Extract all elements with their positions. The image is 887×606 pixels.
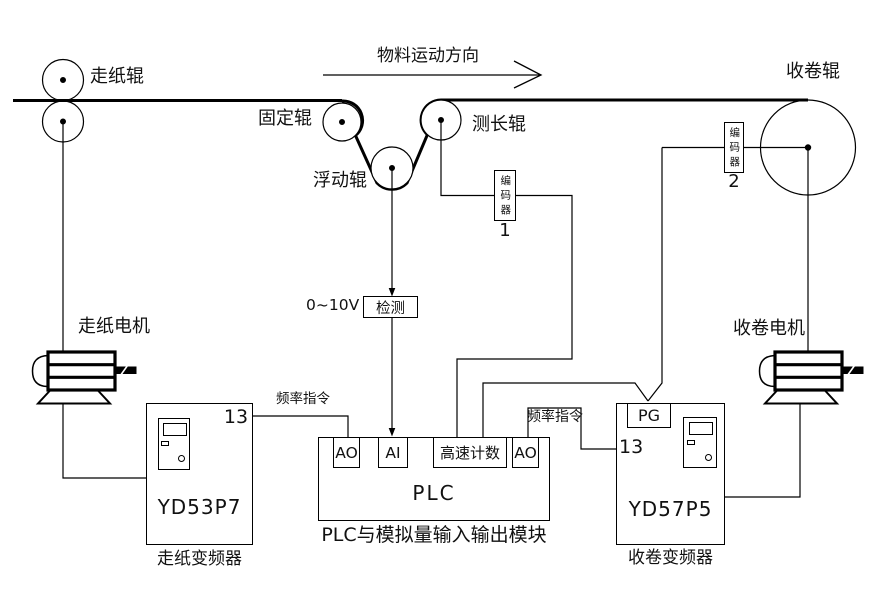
detection-box: 检测 [363,296,418,318]
feed-inverter-caption: 走纸变频器 [146,550,253,570]
encoder1-box: 编码器 [494,170,516,221]
feed-roller-label: 走纸辊 [90,67,144,88]
plc-module-ao-1: AO [333,437,360,468]
winding-inverter-keypad [683,417,717,468]
winding-motor-symbol [760,352,864,404]
fixed-roller-symbol [323,103,361,141]
measuring-to-encoder1-line [441,120,572,437]
pg-box: PG [627,403,671,428]
plc-module-ao-2: AO [512,437,539,468]
encoder2-box: 编码器 [724,122,744,173]
keypad-display [163,423,187,436]
encoder1-number: 1 [494,221,516,242]
keypad-knob [705,454,712,461]
diagram-stage: 走纸辊 固定辊 浮动辊 测长辊 收卷辊 物料运动方向 编码器 1 编码器 2 0… [0,0,887,606]
winding-roller-label: 收卷辊 [786,62,840,83]
keypad-key [687,440,695,445]
freq-command-right-label: 频率指令 [527,409,583,425]
winding-inverter-caption: 收卷变频器 [616,549,725,569]
freq-command-left-label: 频率指令 [276,392,330,408]
voltage-range-label: 0~10V [306,297,359,315]
measuring-roller-label: 测长辊 [472,115,526,136]
plc-name-label: PLC [318,482,550,505]
feed-inverter-keypad [158,418,190,470]
winding-inverter-terminal: 13 [619,437,643,459]
winding-motor-to-inverter-line [725,404,800,497]
floating-roller-label: 浮动辊 [313,171,367,192]
plc-module-ai: AI [378,437,408,468]
plc-module-hsc: 高速计数 [433,437,507,468]
ai-arrowhead [389,428,396,437]
keypad-knob [178,455,185,462]
encoder2-down-line [648,148,662,402]
winding-inverter-model: YD57P5 [616,498,725,521]
keypad-display [689,422,713,435]
feed-inverter-terminal: 13 [222,407,250,429]
winding-motor-label: 收卷电机 [733,319,805,340]
material-direction-label: 物料运动方向 [377,47,479,67]
plc-caption-label: PLC与模拟量输入输出模块 [310,525,558,547]
feed-motor-symbol [33,352,137,404]
keypad-key [161,441,169,446]
feed-motor-to-inverter-line [63,404,146,478]
fixed-roller-label: 固定辊 [258,109,312,130]
feed-motor-label: 走纸电机 [78,317,150,338]
encoder2-number: 2 [724,172,744,193]
feed-inverter-model: YD53P7 [146,496,253,519]
